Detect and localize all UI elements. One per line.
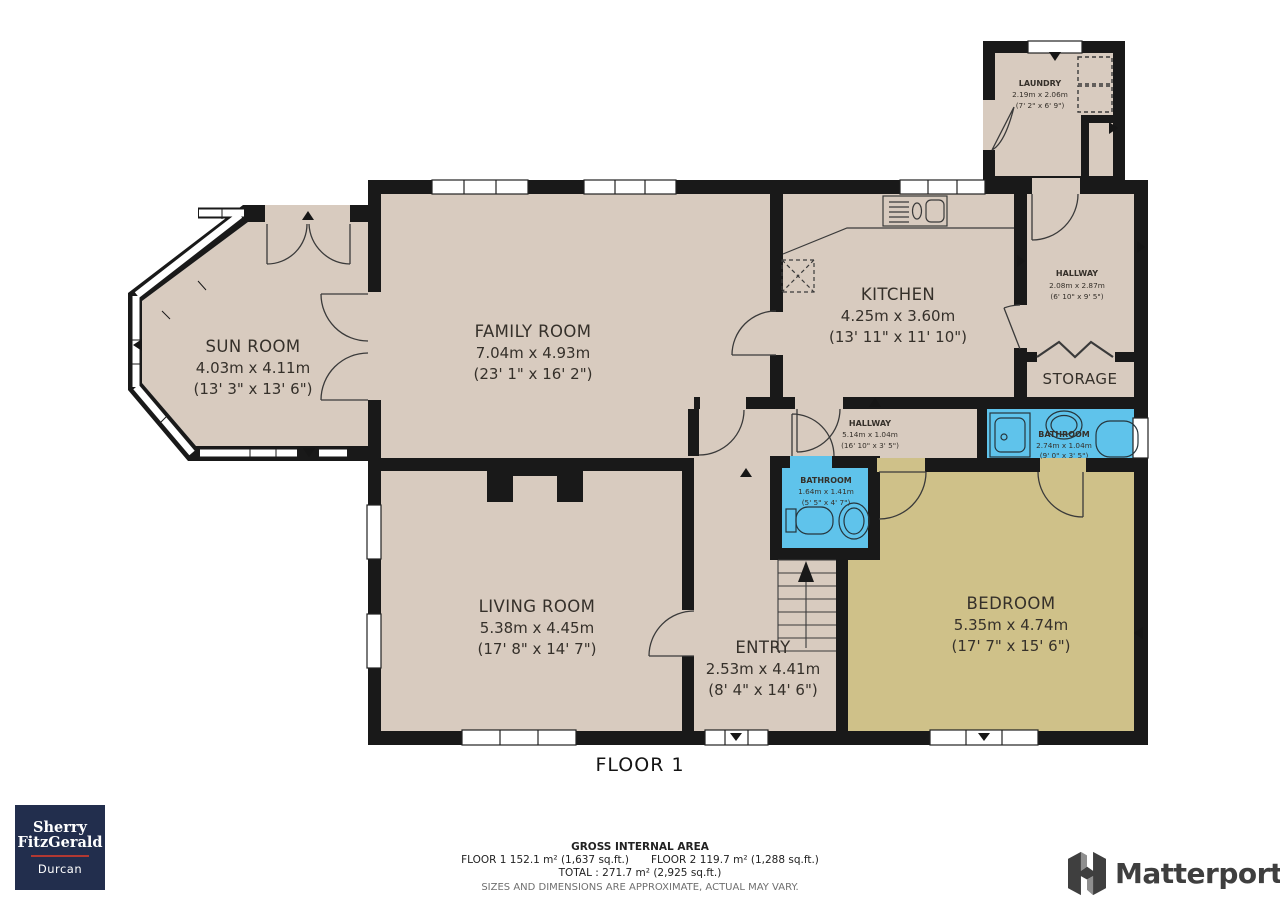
entry-name: ENTRY (735, 638, 791, 657)
window-living-3 (462, 730, 576, 745)
hallway-upper-name: HALLWAY (1056, 269, 1098, 278)
bathroom-small-metric: 1.64m x 1.41m (798, 487, 854, 496)
label-family-room: FAMILY ROOM 7.04m x 4.93m (23' 1" x 16' … (474, 322, 593, 383)
laundry-imperial: (7' 2" x 6' 9") (1016, 101, 1065, 110)
window-living-2 (367, 614, 381, 668)
window-laundry (1028, 41, 1082, 53)
floorplan-page: SUN ROOM 4.03m x 4.11m (13' 3" x 13' 6")… (0, 0, 1280, 905)
label-bedroom: BEDROOM 5.35m x 4.74m (17' 7" x 15' 6") (952, 594, 1071, 655)
window-living-1 (367, 505, 381, 559)
agency-name-line3: Durcan (15, 862, 105, 876)
hallway-mid-metric: 5.14m x 1.04m (842, 430, 898, 439)
kitchen-imperial: (13' 11" x 11' 10") (829, 328, 967, 346)
entry-metric: 2.53m x 4.41m (706, 660, 820, 678)
floor-plan-svg: SUN ROOM 4.03m x 4.11m (13' 3" x 13' 6")… (0, 0, 1280, 905)
kitchen-metric: 4.25m x 3.60m (841, 307, 955, 325)
bedroom-imperial: (17' 7" x 15' 6") (952, 637, 1071, 655)
family-room-metric: 7.04m x 4.93m (476, 344, 590, 362)
bathroom-main-name: BATHROOM (1038, 430, 1090, 439)
window-family-1 (432, 180, 528, 194)
laundry-name: LAUNDRY (1019, 79, 1062, 88)
window-kitchen (900, 180, 985, 194)
agency-name-line2: FitzGerald (15, 835, 105, 850)
storage-name: STORAGE (1043, 370, 1118, 388)
matterport-logo: Matterport (1068, 851, 1280, 896)
matterport-m-icon (1068, 851, 1106, 896)
family-room-name: FAMILY ROOM (475, 322, 592, 341)
family-room-imperial: (23' 1" x 16' 2") (474, 365, 593, 383)
sun-room-imperial: (13' 3" x 13' 6") (194, 380, 313, 398)
hallway-mid-imperial: (16' 10" x 3' 5") (841, 441, 899, 450)
agency-logo-rule (31, 855, 89, 857)
hallway-upper-imperial: (6' 10" x 9' 5") (1050, 292, 1103, 301)
living-room-metric: 5.38m x 4.45m (480, 619, 594, 637)
hallway-mid-name: HALLWAY (849, 419, 891, 428)
matterport-wordmark: Matterport (1115, 857, 1280, 890)
label-bathroom-small: BATHROOM 1.64m x 1.41m (5' 5" x 4' 7") (798, 476, 854, 507)
agency-logo: Sherry FitzGerald Durcan (15, 805, 105, 890)
bedroom-name: BEDROOM (967, 594, 1056, 613)
kitchen-name: KITCHEN (861, 285, 935, 304)
hallway-upper-metric: 2.08m x 2.87m (1049, 281, 1105, 290)
label-hallway-mid: HALLWAY 5.14m x 1.04m (16' 10" x 3' 5") (841, 419, 899, 450)
floor-title: FLOOR 1 (595, 754, 684, 776)
living-room-name: LIVING ROOM (479, 597, 596, 616)
sun-room-metric: 4.03m x 4.11m (196, 359, 310, 377)
label-bathroom-main: BATHROOM 2.74m x 1.04m (9' 0" x 3' 5") (1036, 430, 1092, 460)
floor1-area: FLOOR 1 152.1 m² (1,637 sq.ft.) (461, 854, 629, 866)
agency-name-line1: Sherry (15, 820, 105, 835)
bathroom-main-metric: 2.74m x 1.04m (1036, 441, 1092, 450)
bathroom-small-name: BATHROOM (800, 476, 852, 485)
living-room-imperial: (17' 8" x 14' 7") (478, 640, 597, 658)
entry-imperial: (8' 4" x 14' 6") (708, 681, 817, 699)
floor2-area: FLOOR 2 119.7 m² (1,288 sq.ft.) (651, 854, 819, 866)
window-family-2 (584, 180, 676, 194)
laundry-metric: 2.19m x 2.06m (1012, 90, 1068, 99)
label-living-room: LIVING ROOM 5.38m x 4.45m (17' 8" x 14' … (478, 597, 597, 658)
sun-room-name: SUN ROOM (205, 337, 300, 356)
label-storage: STORAGE (1043, 370, 1118, 388)
bathroom-main-imperial: (9' 0" x 3' 5") (1040, 451, 1089, 460)
bathroom-small-imperial: (5' 5" x 4' 7") (802, 498, 851, 507)
label-hallway-upper: HALLWAY 2.08m x 2.87m (6' 10" x 9' 5") (1049, 269, 1105, 301)
bedroom-metric: 5.35m x 4.74m (954, 616, 1068, 634)
label-sun-room: SUN ROOM 4.03m x 4.11m (13' 3" x 13' 6") (194, 337, 313, 398)
label-laundry: LAUNDRY 2.19m x 2.06m (7' 2" x 6' 9") (1012, 79, 1068, 110)
